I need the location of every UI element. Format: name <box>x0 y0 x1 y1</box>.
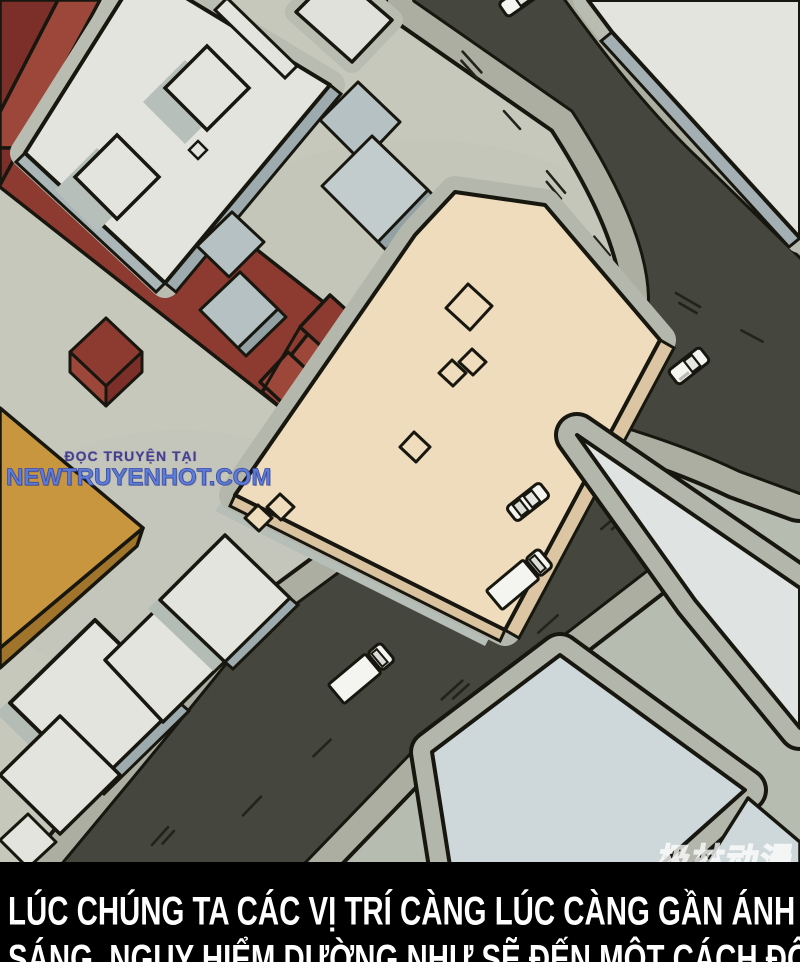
caption-line-1: LÚC CHÚNG TA CÁC VỊ TRÍ CÀNG LÚC CÀNG GẦ… <box>8 890 792 935</box>
caption-line-2-clipped: SÁNG, NGUY HIỂM DƯỜNG NHƯ SẼ ĐẾN MỘT CÁC… <box>8 938 792 962</box>
city-map-illustration <box>0 0 800 862</box>
manga-panel: ĐỌC TRUYỆN TẠI NEWTRUYENHOT.COM 极林动漫 LÚC… <box>0 0 800 962</box>
caption-bar: LÚC CHÚNG TA CÁC VỊ TRÍ CÀNG LÚC CÀNG GẦ… <box>0 862 800 962</box>
